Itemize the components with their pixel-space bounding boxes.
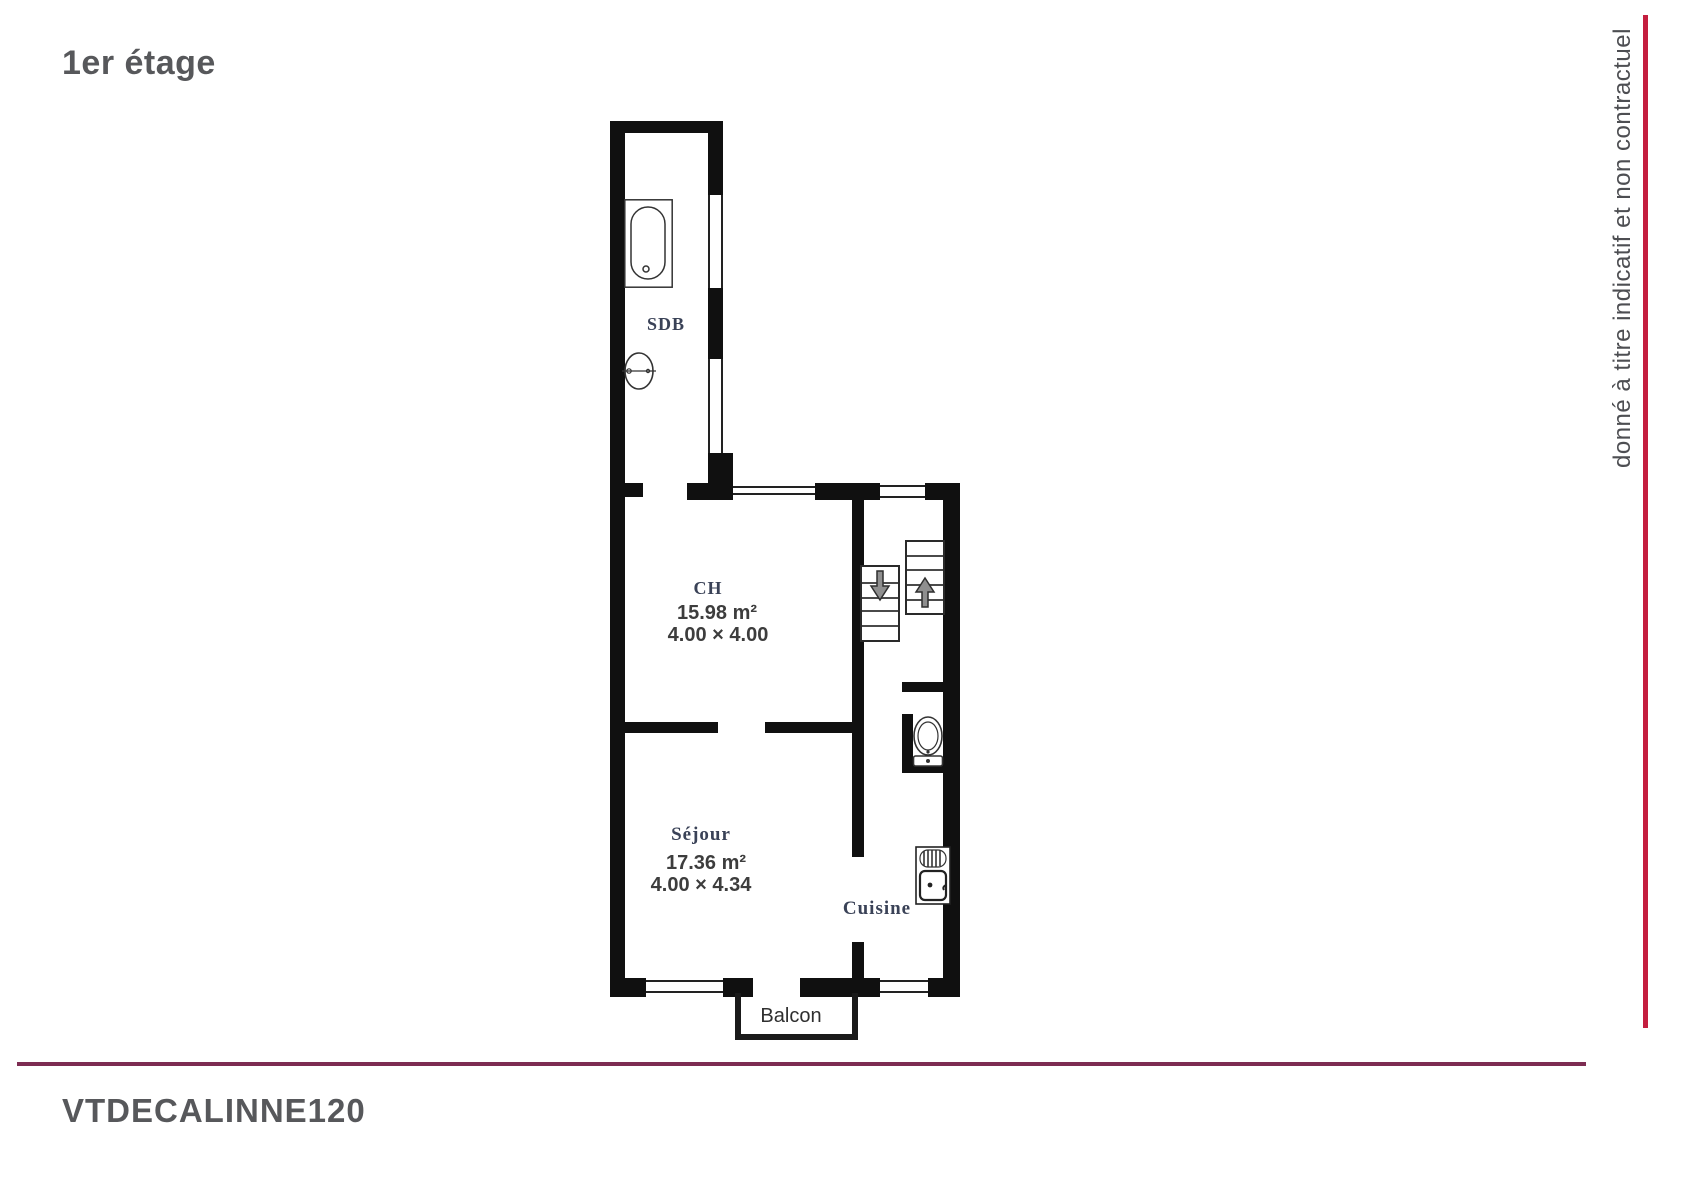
toilet-icon — [911, 716, 947, 767]
stairs-up-arrow-icon — [914, 576, 936, 608]
wall-top-mid — [815, 483, 880, 500]
wall-bottom-d — [928, 978, 960, 997]
room-label-cuisine: Cuisine — [817, 898, 937, 920]
floor-plan-page: 1er étage VTDECALINNE120 donné à titre i… — [0, 0, 1697, 1200]
wall-wc-top — [902, 682, 945, 692]
stair-tread — [862, 610, 898, 612]
window-cuisine — [880, 980, 928, 993]
wall-bottom-a — [610, 978, 646, 997]
wall-ch-door-stub — [610, 483, 643, 497]
accent-line-vertical — [1643, 15, 1648, 1028]
window-sdb-upper — [708, 195, 723, 288]
window-interior-landing — [733, 486, 815, 495]
washbasin-icon — [622, 351, 658, 391]
disclaimer-text: donné à titre indicatif et non contractu… — [1609, 28, 1637, 468]
window-top-right — [880, 485, 925, 498]
room-label-sdb: SDB — [616, 314, 716, 335]
reference-code: VTDECALINNE120 — [62, 1092, 366, 1130]
dims-label-sejour: 4.00 × 4.34 — [631, 874, 771, 897]
room-label-balcon: Balcon — [741, 1005, 841, 1028]
wall-bottom-c — [800, 978, 880, 997]
stair-tread — [862, 625, 898, 627]
wall-sdb-top — [610, 121, 723, 133]
window-sdb-lower — [708, 359, 723, 453]
stair-tread — [907, 555, 943, 557]
wall-hall-upper — [852, 498, 864, 857]
wall-ch-top — [687, 483, 733, 500]
area-label-sejour: 17.36 m² — [636, 852, 776, 875]
wall-ch-sejour-b — [765, 722, 852, 733]
window-sejour — [646, 980, 723, 993]
page-title: 1er étage — [62, 44, 216, 83]
balcony-wall-right — [852, 993, 858, 1040]
room-label-ch: CH — [658, 578, 758, 599]
accent-line-horizontal — [17, 1062, 1586, 1066]
wall-ch-sejour-a — [625, 722, 718, 733]
dims-label-ch: 4.00 × 4.00 — [648, 624, 788, 647]
kitchen-sink-icon — [915, 846, 952, 905]
wall-sdb-right-a — [708, 121, 723, 195]
bathtub-icon — [624, 199, 673, 288]
room-label-sejour: Séjour — [641, 824, 761, 846]
stair-tread — [907, 569, 943, 571]
area-label-ch: 15.98 m² — [647, 602, 787, 625]
wall-left-outer — [610, 121, 625, 997]
stairs-down-arrow-icon — [869, 570, 891, 602]
balcony-wall-bottom — [735, 1034, 858, 1040]
